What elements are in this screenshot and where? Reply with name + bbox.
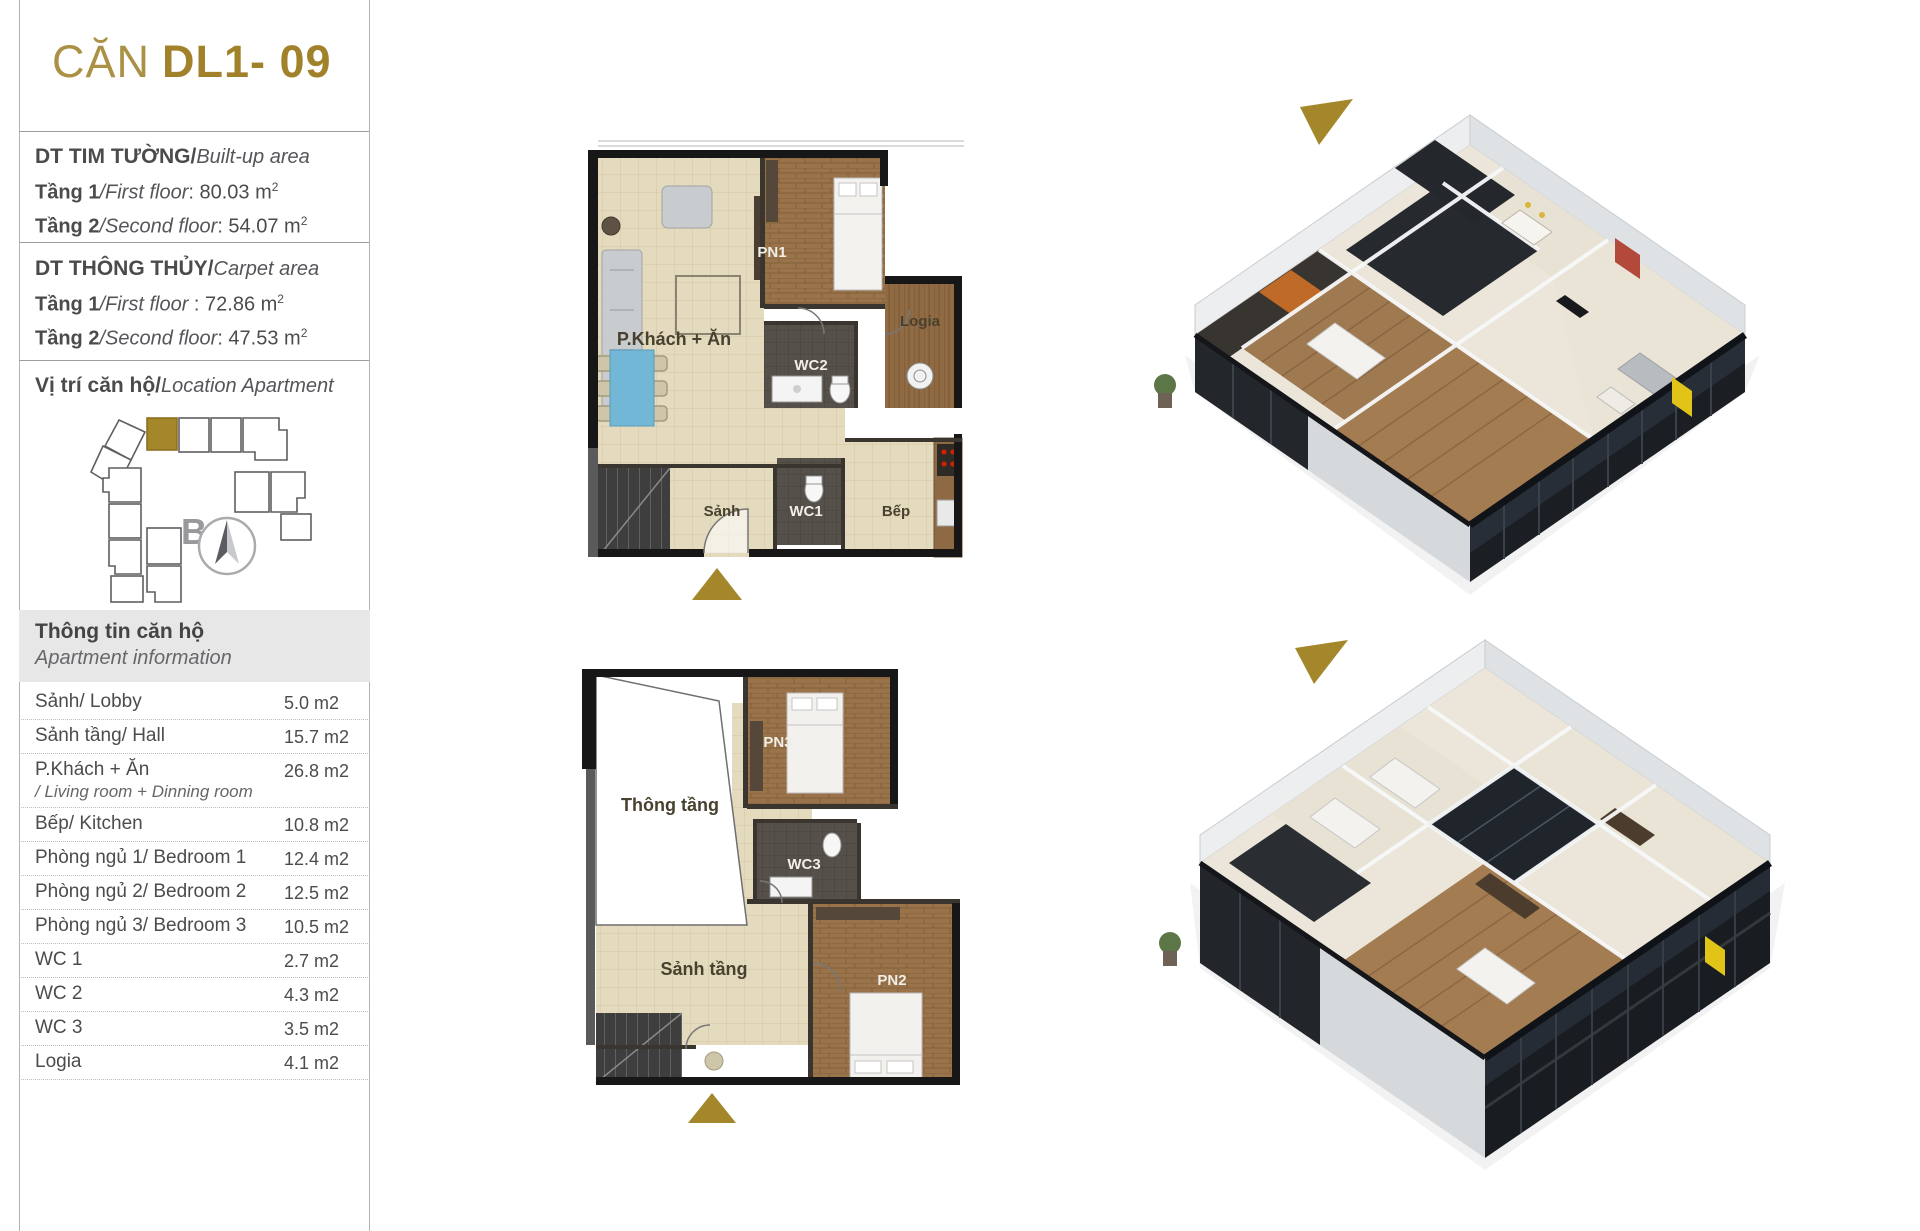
plan1-label-logia: Logia bbox=[900, 313, 941, 330]
plan2-label-hall: Sảnh tầng bbox=[660, 959, 747, 979]
floorplan-first-floor: P.Khách + Ăn PN1 Logia WC2 Sảnh WC1 Bếp bbox=[584, 138, 984, 608]
location-map: B bbox=[85, 410, 365, 615]
plan1-label-wc2: WC2 bbox=[794, 357, 827, 374]
iso1-building bbox=[1154, 115, 1760, 595]
plan1-label-bedroom1: PN1 bbox=[757, 244, 786, 261]
table-row: WC 24.3 m2 bbox=[19, 978, 370, 1012]
location-heading: Vị trí căn hộ/Location Apartment bbox=[35, 374, 369, 398]
table-row: Phòng ngủ 3/ Bedroom 310.5 m2 bbox=[19, 910, 370, 944]
built-up-heading: DT TIM TƯỜNG/Built-up area bbox=[35, 145, 369, 169]
carpet-floor2: Tầng 2/Second floor: 47.53 m2 bbox=[35, 319, 369, 353]
location-map-units bbox=[91, 418, 311, 602]
table-row: Sảnh/ Lobby5.0 m2 bbox=[19, 686, 370, 720]
compass-icon bbox=[199, 518, 255, 574]
floorplan-second-floor: Thông tầng PN3 WC3 Sảnh tầng PN2 bbox=[582, 663, 986, 1131]
carpet-floor1: Tầng 1/First floor : 72.86 m2 bbox=[35, 285, 369, 319]
apartment-title-code: DL1- 09 bbox=[162, 36, 332, 87]
iso2-building bbox=[1159, 640, 1785, 1170]
plan2-label-bedroom2: PN2 bbox=[877, 972, 906, 989]
location-section-heading: Vị trí căn hộ/Location Apartment bbox=[19, 361, 369, 401]
plan1-label-wc1: WC1 bbox=[789, 503, 822, 520]
entrance-arrow-icon bbox=[692, 568, 742, 600]
apartment-title-prefix: CĂN bbox=[52, 36, 150, 87]
entrance-arrow-icon bbox=[688, 1093, 736, 1123]
location-map-highlighted-unit bbox=[147, 418, 177, 450]
carpet-area-section: DT THÔNG THỦY/Carpet area Tầng 1/First f… bbox=[19, 244, 369, 361]
table-row: Logia4.1 m2 bbox=[19, 1046, 370, 1080]
built-up-floor1: Tầng 1/First floor: 80.03 m2 bbox=[35, 173, 369, 207]
plan1-label-living: P.Khách + Ăn bbox=[617, 328, 731, 349]
carpet-heading: DT THÔNG THỦY/Carpet area bbox=[35, 257, 369, 281]
built-up-area-section: DT TIM TƯỜNG/Built-up area Tầng 1/First … bbox=[19, 131, 369, 243]
table-row: P.Khách + Ăn/ Living room + Dinning room… bbox=[19, 754, 370, 808]
table-row: WC 12.7 m2 bbox=[19, 944, 370, 978]
plan2-graphics bbox=[582, 669, 960, 1085]
apartment-info-header: Thông tin căn hộ Apartment information bbox=[19, 610, 370, 682]
apartment-info-title-en: Apartment information bbox=[35, 647, 370, 670]
table-row: Phòng ngủ 1/ Bedroom 112.4 m2 bbox=[19, 842, 370, 876]
plan2-label-bedroom3: PN3 bbox=[763, 734, 792, 751]
plan1-label-kitchen: Bếp bbox=[882, 503, 910, 520]
built-up-floor2: Tầng 2/Second floor: 54.07 m2 bbox=[35, 207, 369, 241]
plan2-label-wc3: WC3 bbox=[787, 856, 820, 873]
apartment-info-table: Sảnh/ Lobby5.0 m2 Sảnh tầng/ Hall15.7 m2… bbox=[19, 686, 370, 1080]
table-row: Phòng ngủ 2/ Bedroom 212.5 m2 bbox=[19, 876, 370, 910]
plan1-graphics bbox=[588, 141, 964, 557]
iso-view-first-floor bbox=[1095, 55, 1805, 625]
table-row: WC 33.5 m2 bbox=[19, 1012, 370, 1046]
plan1-label-lobby: Sảnh bbox=[704, 503, 741, 520]
apartment-title: CĂNDL1- 09 bbox=[52, 36, 332, 88]
view-direction-arrow-icon bbox=[1300, 99, 1353, 145]
table-row: Bếp/ Kitchen10.8 m2 bbox=[19, 808, 370, 842]
iso-view-second-floor bbox=[1095, 618, 1825, 1178]
view-direction-arrow-icon bbox=[1295, 640, 1348, 684]
plan2-label-void: Thông tầng bbox=[621, 795, 719, 815]
floorplan-brochure-page: { "colors":{"gold":"#a5872b","text_dark"… bbox=[0, 0, 1920, 1231]
apartment-info-title-vi: Thông tin căn hộ bbox=[35, 620, 370, 644]
table-row: Sảnh tầng/ Hall15.7 m2 bbox=[19, 720, 370, 754]
